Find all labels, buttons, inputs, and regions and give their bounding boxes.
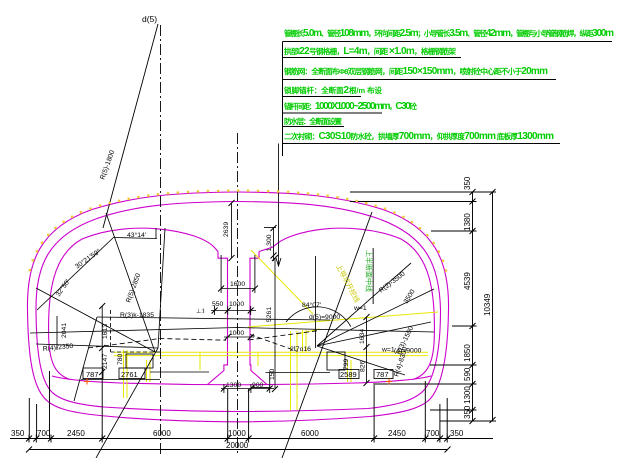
svg-text:6000: 6000 [153,429,171,438]
svg-text:84°07′: 84°07′ [302,301,322,309]
svg-text:⊥:Ⅰ: ⊥:Ⅰ [196,308,205,315]
svg-text:二次衬砌：C30S10防水砼，拱墙厚700mm，仰拱厚度70: 二次衬砌：C30S10防水砼，拱墙厚700mm，仰拱厚度700mm 底板厚130… [284,131,554,142]
svg-text:1850: 1850 [463,344,472,362]
svg-text:w=1: w=1 [353,305,367,312]
svg-text:锚杆间距：1000X1000~2500mm，C30砼: 锚杆间距：1000X1000~2500mm，C30砼 [284,101,417,112]
svg-text:700: 700 [426,429,440,438]
svg-text:w=1: w=1 [381,347,395,354]
svg-text:2041: 2041 [61,323,68,338]
svg-text:4539: 4539 [463,272,472,290]
svg-text:d(5): d(5) [142,14,157,24]
svg-text:R(3)k-1835: R(3)k-1835 [120,312,154,319]
svg-text:350: 350 [450,429,464,438]
svg-text:拱部Ⅰ22号钢格栅，L=4m，间距 ×1.0m，格栅钢筋架: 拱部Ⅰ22号钢格栅，L=4m，间距 ×1.0m，格栅钢筋架 [284,46,456,57]
svg-text:787: 787 [376,370,389,379]
svg-text:43°14′: 43°14′ [127,231,147,239]
svg-text:d(5)=9000: d(5)=9000 [309,314,340,321]
svg-text:787: 787 [86,370,99,379]
svg-text:管棚长5.0m、管径108mm，环向间距2.5m；小导管长3: 管棚长5.0m、管径108mm，环向间距2.5m；小导管长3.5m、管径42mm… [284,28,614,39]
svg-text:900: 900 [252,382,264,389]
svg-text:上半断面中线: 上半断面中线 [365,250,374,292]
svg-text:2450: 2450 [388,429,406,438]
svg-text:1380: 1380 [463,213,472,231]
svg-text:2761: 2761 [121,370,138,379]
svg-text:1300: 1300 [463,386,472,404]
svg-text:1600: 1600 [230,281,245,288]
svg-text:550: 550 [212,301,224,308]
svg-text:1634: 1634 [359,329,366,344]
svg-text:1000: 1000 [229,301,244,308]
svg-text:防水层：全断面设置: 防水层：全断面设置 [284,116,342,126]
svg-text:1300: 1300 [226,382,241,389]
svg-text:6000: 6000 [301,429,319,438]
svg-text:350: 350 [463,176,472,190]
svg-text:2Ⅰ7o16: 2Ⅰ7o16 [290,346,311,353]
svg-text:350: 350 [463,405,472,419]
svg-text:799: 799 [343,358,350,370]
svg-text:1613: 1613 [102,324,109,339]
svg-text:780: 780 [117,353,124,365]
svg-text:10349: 10349 [483,293,492,316]
svg-text:2589: 2589 [340,370,357,379]
svg-text:350: 350 [11,429,25,438]
svg-text:2450: 2450 [67,429,85,438]
svg-text:700: 700 [37,429,51,438]
svg-text:2147: 2147 [102,354,109,369]
svg-text:1,300: 1,300 [266,234,273,251]
svg-text:钢筋网：全断面布Φ8双层钢筋网，间距150×150mm，喷射: 钢筋网：全断面布Φ8双层钢筋网，间距150×150mm，喷射砼中心距不小于20m… [284,66,548,77]
svg-text:1000: 1000 [229,330,244,337]
svg-text:150: 150 [269,368,276,380]
svg-text:826: 826 [360,360,367,372]
svg-text:锁脚锚杆：全断面2根/m 布设: 锁脚锚杆：全断面2根/m 布设 [284,85,382,96]
svg-text:2639: 2639 [223,222,230,237]
svg-text:5261: 5261 [266,307,273,322]
svg-text:590: 590 [463,367,472,381]
